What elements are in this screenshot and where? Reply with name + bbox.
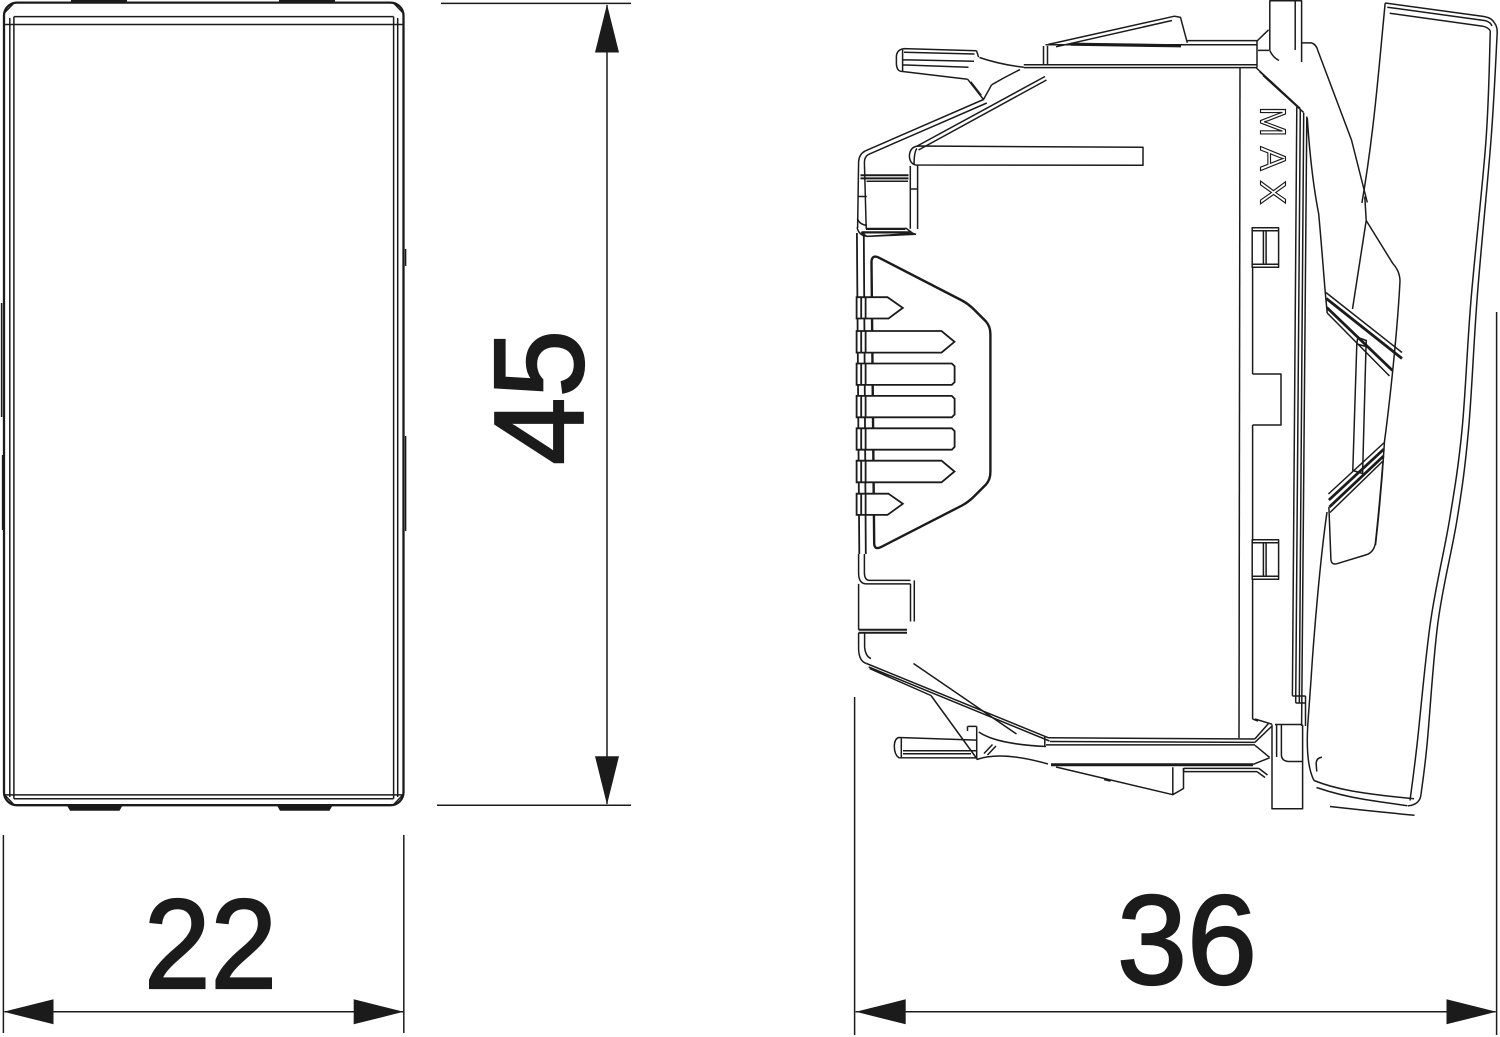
svg-text:22: 22	[144, 873, 277, 1015]
svg-text:MAX: MAX	[1253, 107, 1294, 215]
svg-text:36: 36	[1117, 869, 1257, 1011]
svg-text:45: 45	[468, 330, 610, 465]
